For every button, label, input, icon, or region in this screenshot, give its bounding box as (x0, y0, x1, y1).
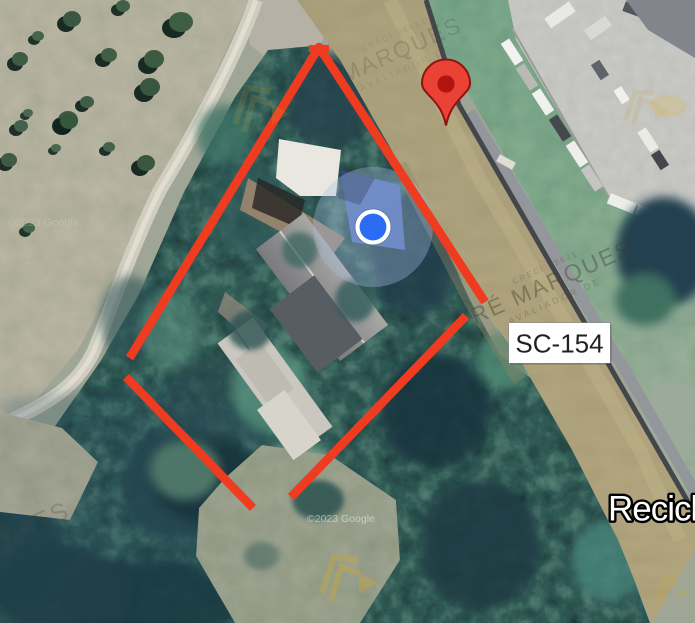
svg-text:©2023 Google: ©2023 Google (307, 513, 375, 525)
svg-text:SC-154: SC-154 (515, 329, 603, 359)
svg-text:©2023 Google: ©2023 Google (8, 217, 79, 229)
svg-text:Reciclagem: Reciclagem (608, 490, 695, 529)
